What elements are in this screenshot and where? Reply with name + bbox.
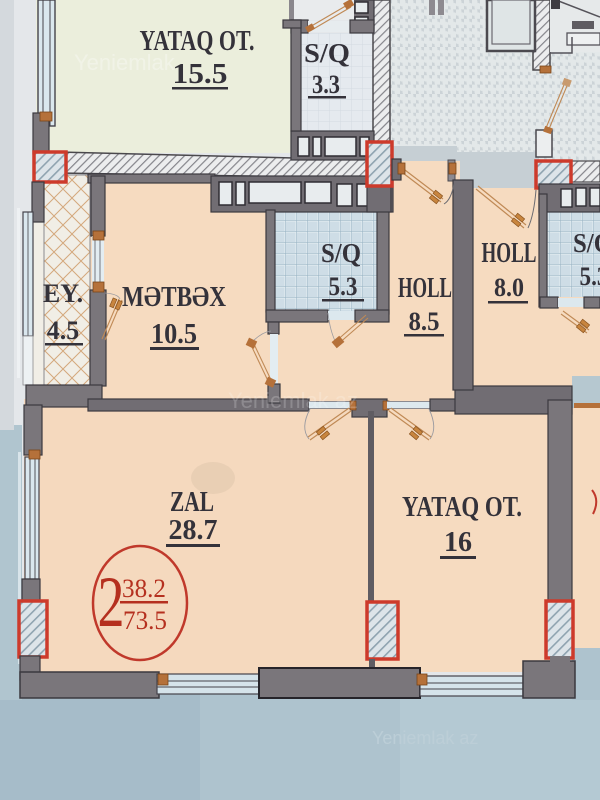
svg-text:5.3: 5.3 (329, 272, 358, 301)
svg-text:8.5: 8.5 (409, 307, 440, 336)
svg-text:28.7: 28.7 (169, 515, 218, 546)
svg-text:16: 16 (444, 527, 472, 558)
svg-text:5.3: 5.3 (580, 262, 600, 291)
svg-text:15.5: 15.5 (173, 59, 228, 90)
svg-text:38.2: 38.2 (122, 574, 166, 603)
svg-text:4.5: 4.5 (47, 316, 80, 345)
svg-text:EY.: EY. (43, 279, 83, 308)
svg-text:Yeniemlak az: Yeniemlak az (372, 728, 478, 748)
svg-text:S/Q: S/Q (304, 38, 350, 68)
svg-text:73.5: 73.5 (123, 606, 167, 635)
svg-text:10.5: 10.5 (151, 319, 197, 350)
svg-text:Yeniemlak: Yeniemlak (74, 50, 176, 75)
svg-text:3.3: 3.3 (312, 70, 340, 99)
svg-text:8.0: 8.0 (494, 273, 524, 302)
svg-text:MƏTBƏX: MƏTBƏX (122, 281, 226, 313)
svg-text:S/Q: S/Q (321, 238, 361, 268)
svg-text:S/Q: S/Q (573, 228, 600, 258)
svg-text:Yeniemlak az: Yeniemlak az (228, 388, 358, 413)
svg-text:YATAQ OT.: YATAQ OT. (402, 492, 522, 523)
svg-text:ZAL: ZAL (170, 487, 214, 518)
svg-text:HOLL: HOLL (398, 273, 452, 304)
svg-text:HOLL: HOLL (482, 238, 537, 269)
